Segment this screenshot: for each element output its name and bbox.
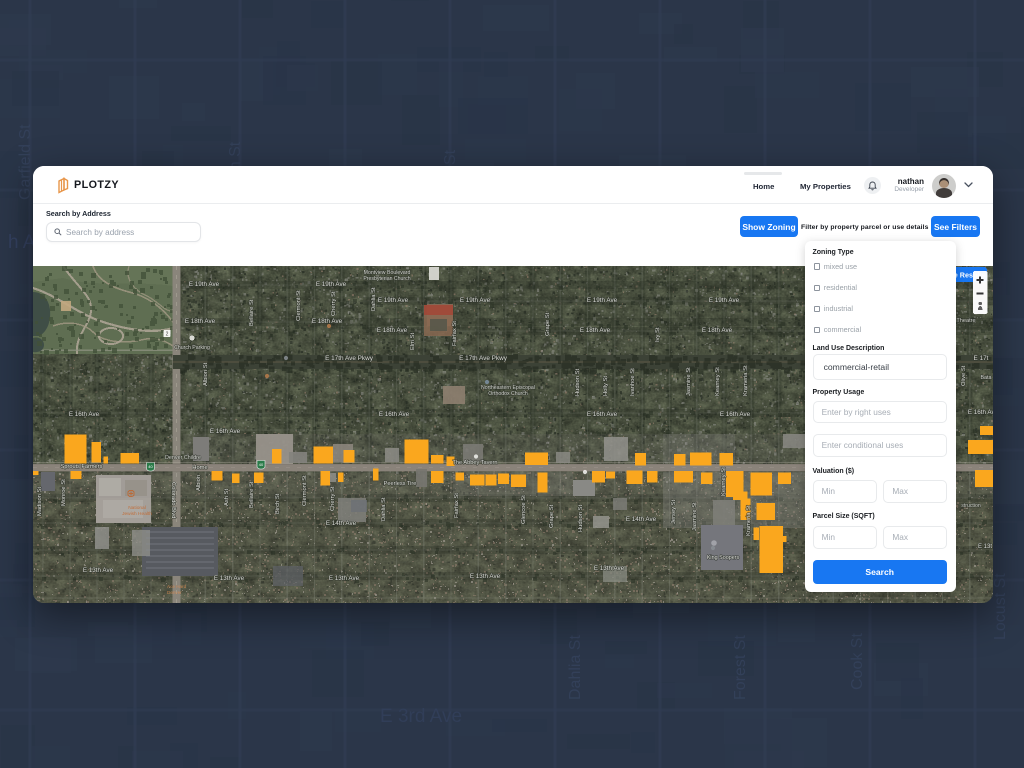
svg-text:E 18th Ave: E 18th Ave <box>185 318 216 325</box>
svg-text:Orthodox Church: Orthodox Church <box>488 391 528 397</box>
svg-text:Home: Home <box>192 465 207 471</box>
svg-text:Monroe St: Monroe St <box>61 479 67 506</box>
svg-text:Fairfax St: Fairfax St <box>454 493 460 518</box>
svg-text:E 13th Ave: E 13th Ave <box>594 565 625 572</box>
svg-text:E 14th Ave: E 14th Ave <box>326 520 357 527</box>
svg-text:King Soopers: King Soopers <box>707 555 740 561</box>
svg-text:E 19th Ave: E 19th Ave <box>709 297 740 304</box>
svg-text:The Abbey Tavern: The Abbey Tavern <box>453 460 498 466</box>
svg-text:Ash St: Ash St <box>224 489 230 506</box>
svg-text:Theatre: Theatre <box>956 318 975 324</box>
svg-text:E 17t: E 17t <box>974 355 989 362</box>
svg-text:E 13th Ave: E 13th Ave <box>470 573 501 580</box>
svg-text:40: 40 <box>148 464 153 469</box>
svg-text:E 16th Ave: E 16th Ave <box>720 411 751 418</box>
svg-text:E 18th Ave: E 18th Ave <box>377 327 408 334</box>
svg-text:Dahlia St: Dahlia St <box>381 497 387 521</box>
svg-text:E 19th Ave: E 19th Ave <box>460 297 491 304</box>
svg-text:Ace Hard: Ace Hard <box>167 584 187 589</box>
svg-text:Albion: Albion <box>196 475 202 491</box>
svg-text:Jasmine St: Jasmine St <box>686 367 692 396</box>
svg-text:E 18th Ave: E 18th Ave <box>580 327 611 334</box>
svg-text:Cook St: Cook St <box>849 633 866 690</box>
svg-text:Colorado Blvd: Colorado Blvd <box>170 482 176 518</box>
svg-text:Holly St: Holly St <box>603 376 609 396</box>
svg-text:Cherry St: Cherry St <box>330 486 336 511</box>
svg-text:E 17th Ave Pkwy: E 17th Ave Pkwy <box>325 355 374 362</box>
svg-text:E 16th Ave: E 16th Ave <box>587 411 618 418</box>
svg-text:E 19th Ave: E 19th Ave <box>587 297 618 304</box>
svg-text:Denver: Denver <box>167 590 182 595</box>
svg-text:E 13th Ave: E 13th Ave <box>329 575 360 582</box>
svg-text:E 16th Ave: E 16th Ave <box>69 411 100 418</box>
svg-text:E 13th Ave: E 13th Ave <box>214 575 245 582</box>
svg-text:E 18th Ave: E 18th Ave <box>702 327 733 334</box>
svg-text:Clermont St: Clermont St <box>296 290 302 321</box>
svg-text:E 19th Ave: E 19th Ave <box>189 281 220 288</box>
svg-text:E 13th Ave: E 13th Ave <box>83 567 114 574</box>
svg-text:Locust St: Locust St <box>992 573 1009 640</box>
svg-text:Grape St: Grape St <box>545 312 551 336</box>
svg-text:Sprouts Farmers: Sprouts Farmers <box>61 464 103 470</box>
svg-text:Dahlia St: Dahlia St <box>371 287 377 311</box>
svg-text:Hudson St: Hudson St <box>578 505 584 532</box>
svg-text:Krameria St: Krameria St <box>746 505 752 536</box>
svg-text:Church Parking: Church Parking <box>174 345 210 351</box>
svg-text:E 19th Ave: E 19th Ave <box>378 297 409 304</box>
svg-text:E 16th Ave: E 16th Ave <box>968 409 993 416</box>
svg-text:Olive St: Olive St <box>961 365 967 386</box>
svg-text:Forest St: Forest St <box>732 635 749 700</box>
svg-text:Ivy St: Ivy St <box>655 327 661 342</box>
svg-text:Albion St: Albion St <box>203 362 209 386</box>
svg-text:Dahlia St: Dahlia St <box>567 635 584 700</box>
svg-text:E 18th Ave: E 18th Ave <box>312 318 343 325</box>
svg-text:Elm St: Elm St <box>410 333 416 350</box>
svg-text:Hudson St: Hudson St <box>575 369 581 396</box>
svg-text:Bellaire St: Bellaire St <box>249 481 255 508</box>
svg-text:Peerless Tire: Peerless Tire <box>384 481 417 487</box>
svg-text:Birch St: Birch St <box>275 493 281 514</box>
svg-text:Grape St: Grape St <box>549 504 555 528</box>
svg-text:E 16th Ave: E 16th Ave <box>379 411 410 418</box>
svg-text:Cherry St: Cherry St <box>331 291 337 316</box>
svg-text:E 17th Ave Pkwy: E 17th Ave Pkwy <box>459 355 508 362</box>
svg-text:Glencoe St: Glencoe St <box>521 495 527 524</box>
svg-text:Jewish Health: Jewish Health <box>122 511 152 517</box>
svg-text:Jasmine St: Jasmine St <box>692 502 698 531</box>
svg-text:Ivanhoe St: Ivanhoe St <box>630 368 636 396</box>
svg-text:2: 2 <box>166 332 169 338</box>
svg-text:Jersey St: Jersey St <box>671 499 677 524</box>
svg-text:Bata: Bata <box>980 375 991 381</box>
svg-text:National: National <box>128 505 146 511</box>
svg-text:Bellaire St: Bellaire St <box>249 299 255 326</box>
svg-text:E 16th Ave: E 16th Ave <box>210 428 241 435</box>
svg-text:Presbyterian Church: Presbyterian Church <box>363 276 410 282</box>
svg-text:Kearney St: Kearney St <box>715 367 721 396</box>
svg-text:E 13t: E 13t <box>978 544 992 550</box>
svg-text:E 3rd Ave: E 3rd Ave <box>380 706 462 727</box>
svg-text:Garfield St: Garfield St <box>17 124 34 200</box>
svg-text:40: 40 <box>259 462 264 467</box>
svg-text:E 14th Ave: E 14th Ave <box>626 516 657 523</box>
svg-text:E 19th Ave: E 19th Ave <box>316 281 347 288</box>
svg-text:struction: struction <box>961 503 981 509</box>
svg-text:Denver Childre: Denver Childre <box>165 455 201 461</box>
svg-text:Clermont St: Clermont St <box>302 475 308 506</box>
svg-text:Krameria St: Krameria St <box>743 365 749 396</box>
svg-text:Kearney St: Kearney St <box>721 467 727 496</box>
svg-text:Fairfax St: Fairfax St <box>452 321 458 346</box>
svg-text:Madison St: Madison St <box>37 487 43 516</box>
